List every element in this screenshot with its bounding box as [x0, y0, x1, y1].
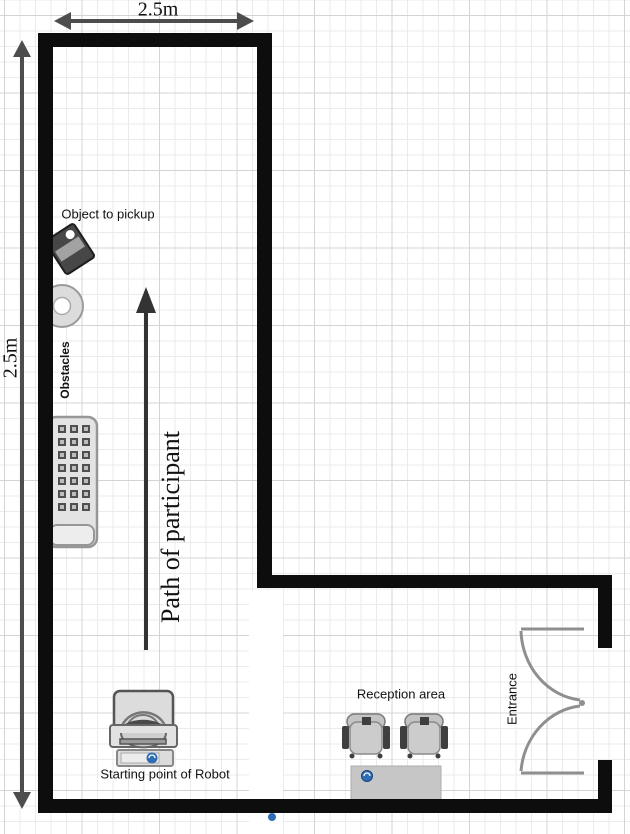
path-label: Path of participant	[156, 431, 186, 623]
robot-start-label: Starting point of Robot	[100, 767, 229, 782]
entrance-door-icon	[521, 629, 585, 773]
robot-icon	[110, 691, 177, 766]
path-arrow	[136, 287, 156, 650]
wall-top	[38, 33, 272, 47]
radiator-obstacle-icon	[47, 417, 97, 547]
dimension-arrow-left	[13, 40, 31, 809]
chair-icon	[342, 714, 390, 759]
wall-right-upper	[598, 575, 612, 648]
dimension-label-left: 2.5m	[0, 338, 23, 379]
floor-plan-drawing	[0, 0, 630, 834]
wall-bottom	[38, 799, 612, 813]
obstacles-label: Obstacles	[58, 341, 72, 398]
object-pickup-label: Object to pickup	[61, 207, 154, 222]
wall-mid-horizontal	[257, 575, 612, 588]
blue-marker	[268, 813, 276, 821]
floor-plan: 2.5m 2.5m Object to pickup Obstacles Pat…	[0, 0, 630, 834]
chair-icon	[400, 714, 448, 759]
wall-inner-vertical	[257, 33, 272, 588]
wall-left	[38, 33, 53, 813]
entrance-label: Entrance	[505, 673, 520, 725]
reception-label: Reception area	[357, 687, 445, 702]
dimension-label-top: 2.5m	[138, 0, 179, 22]
